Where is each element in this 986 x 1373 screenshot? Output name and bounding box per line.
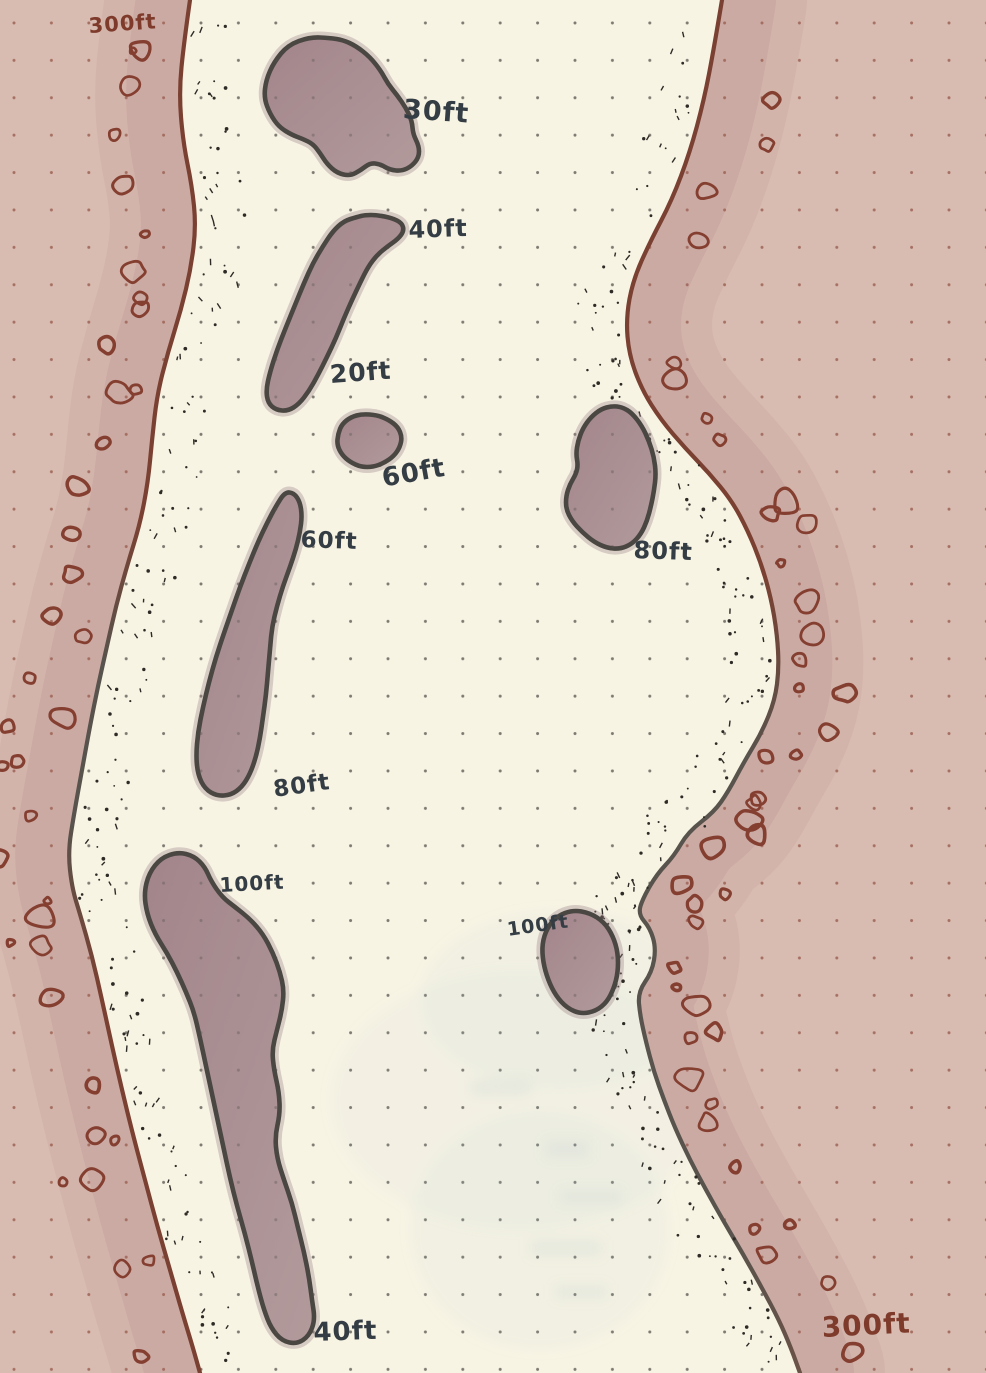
stipple-dot [688, 112, 690, 114]
stipple-dot [105, 808, 109, 812]
stipple-mark [619, 360, 620, 365]
stipple-dot [614, 358, 617, 361]
stipple-dot [647, 822, 650, 825]
stipple-dot [101, 857, 105, 861]
stipple-dot [88, 817, 92, 821]
stipple-dot [148, 1137, 151, 1140]
stipple-dot [619, 396, 621, 398]
stipple-dot [767, 1316, 770, 1319]
stipple-dot [641, 1137, 644, 1140]
stipple-dot [629, 1086, 631, 1088]
stipple-dot [216, 1336, 218, 1338]
stipple-dot [227, 1352, 230, 1355]
stipple-dot [656, 1111, 659, 1114]
stipple-mark [193, 439, 195, 444]
stipple-dot [599, 364, 601, 366]
stipple-dot [668, 438, 671, 441]
stipple-dot [95, 873, 98, 876]
stipple-dot [165, 1238, 168, 1241]
stipple-dot [620, 383, 623, 386]
stipple-dot [688, 1202, 691, 1205]
stipple-dot [721, 1268, 724, 1271]
stipple-dot [730, 661, 733, 664]
stipple-dot [697, 1235, 700, 1238]
stipple-mark [712, 497, 713, 502]
stipple-dot [213, 97, 216, 100]
stipple-dot [721, 730, 724, 733]
stipple-dot [705, 539, 708, 542]
stipple-dot [611, 396, 614, 399]
stipple-dot [639, 851, 642, 854]
stipple-dot [114, 697, 116, 699]
stipple-mark [143, 599, 145, 603]
stipple-dot [662, 1147, 665, 1150]
stipple-mark [729, 608, 731, 613]
stipple-dot [642, 137, 645, 140]
stipple-dot [663, 440, 665, 442]
stipple-dot [101, 899, 103, 901]
stipple-dot [724, 519, 727, 522]
stipple-dot [162, 514, 165, 517]
stipple-dot [706, 534, 709, 537]
stipple-dot [602, 305, 604, 307]
stipple-dot [214, 1332, 216, 1334]
stipple-dot [729, 1257, 732, 1260]
stipple-dot [183, 347, 187, 351]
stipple-mark [776, 1355, 778, 1360]
stipple-dot [761, 625, 763, 627]
stipple-dot [243, 213, 246, 216]
stipple-dot [768, 659, 772, 663]
stipple-dot [694, 1175, 697, 1178]
stipple-dot [203, 1310, 205, 1312]
stipple-dot [121, 798, 123, 800]
stipple-dot [114, 733, 118, 737]
stipple-dot [604, 1014, 606, 1016]
stipple-dot [725, 776, 728, 779]
stipple-dot [183, 410, 186, 413]
stipple-dot [628, 251, 630, 253]
stipple-dot [723, 545, 725, 547]
stipple-dot [214, 323, 217, 326]
stipple-dot [714, 1255, 716, 1257]
stipple-dot [216, 147, 219, 150]
stipple-dot [697, 1254, 701, 1258]
stipple-dot [631, 1071, 635, 1075]
stipple-dot [611, 359, 614, 362]
stipple-dot [158, 1133, 161, 1136]
stipple-dot [595, 312, 597, 314]
stipple-dot [728, 632, 732, 636]
stipple-dot [188, 1271, 190, 1273]
stipple-dot [605, 1054, 607, 1056]
stipple-dot [203, 410, 206, 413]
stipple-dot [641, 1127, 645, 1131]
stipple-dot [149, 529, 151, 531]
stipple-dot [746, 700, 749, 703]
stipple-dot [224, 130, 226, 132]
stipple-dot [201, 1323, 205, 1327]
stipple-dot [136, 1012, 140, 1016]
stipple-dot [686, 104, 689, 107]
stipple-dot [631, 879, 634, 882]
stipple-dot [223, 270, 227, 274]
stipple-dot [620, 892, 624, 896]
stipple-dot [125, 991, 129, 995]
stipple-dot [122, 1032, 125, 1035]
stipple-dot [214, 227, 216, 229]
stipple-dot [171, 507, 174, 510]
stipple-dot [203, 176, 206, 179]
stipple-dot [745, 1325, 749, 1329]
stipple-dot [84, 806, 87, 809]
stipple-dot [187, 507, 189, 509]
stipple-dot [592, 384, 595, 387]
stipple-mark [633, 887, 635, 892]
stipple-dot [678, 1174, 680, 1176]
stipple-dot [751, 695, 753, 697]
stipple-dot [703, 816, 705, 818]
stipple-dot [639, 925, 641, 927]
hand-drawn-depth-map: 300ft30ft40ft20ft60ft60ft80ft80ft100ft10… [0, 0, 986, 1373]
stipple-dot [728, 540, 731, 543]
stipple-dot [151, 603, 154, 606]
stipple-dot [746, 577, 749, 580]
stipple-dot [209, 146, 211, 148]
stipple-dot [136, 564, 139, 567]
stipple-dot [586, 369, 588, 371]
stipple-dot [195, 440, 198, 443]
stipple-dot [681, 62, 684, 65]
stipple-dot [131, 589, 134, 592]
stipple-dot [211, 1322, 215, 1326]
stipple-dot [113, 785, 115, 787]
stipple-dot [111, 958, 114, 961]
stipple-dot [735, 588, 737, 590]
stipple-dot [185, 526, 188, 529]
stipple-dot [603, 1030, 605, 1032]
stipple-dot [185, 1174, 187, 1176]
stipple-dot [142, 1034, 144, 1036]
stipple-dot [734, 652, 738, 656]
stipple-mark [199, 1271, 201, 1275]
stipple-dot [694, 766, 696, 768]
stipple-dot [135, 1042, 138, 1045]
stipple-dot [593, 304, 596, 307]
stipple-dot [602, 265, 605, 268]
stipple-dot [622, 1022, 625, 1025]
stipple-dot [635, 963, 637, 965]
stipple-dot [111, 982, 115, 986]
stipple-dot [616, 1092, 619, 1095]
stipple-dot [709, 1255, 711, 1257]
stipple-dot [632, 958, 635, 961]
stipple-dot [733, 1237, 736, 1240]
stipple-dot [743, 1281, 746, 1284]
stipple-dot [81, 893, 84, 896]
stipple-dot [217, 25, 219, 27]
stipple-dot [126, 926, 128, 928]
stipple-dot [732, 1326, 735, 1329]
stipple-dot [614, 389, 618, 393]
stipple-dot [688, 503, 690, 505]
stipple-dot [719, 538, 722, 541]
stipple-dot [224, 25, 227, 28]
stipple-dot [141, 999, 144, 1002]
stipple-dot [143, 629, 146, 632]
stipple-dot [750, 595, 754, 599]
stipple-dot [224, 1359, 227, 1362]
stipple-dot [108, 712, 112, 716]
stipple-dot [171, 407, 174, 410]
stipple-dot [225, 127, 229, 131]
stipple-dot [160, 490, 162, 492]
stipple-dot [723, 537, 726, 540]
stipple-dot [685, 498, 688, 501]
stipple-dot [646, 815, 649, 818]
stipple-dot [677, 1234, 680, 1237]
stipple-dot [146, 569, 150, 573]
stipple-dot [110, 966, 113, 969]
stipple-dot [757, 689, 760, 692]
stipple-dot [577, 303, 579, 305]
stipple-dot [224, 265, 226, 267]
stipple-dot [115, 817, 118, 820]
stipple-dot [766, 1308, 770, 1312]
stipple-dot [668, 441, 672, 445]
stipple-dot [664, 800, 668, 804]
stipple-dot [129, 700, 131, 702]
stipple-dot [728, 619, 732, 623]
stipple-dot [126, 781, 129, 784]
stipple-dot [658, 821, 660, 823]
stipple-dot [148, 610, 152, 614]
stipple-dot [185, 466, 187, 468]
stipple-dot [628, 929, 631, 932]
stipple-dot [715, 742, 718, 745]
stipple-dot [665, 147, 667, 149]
stipple-dot [723, 582, 726, 585]
stipple-dot [742, 1332, 745, 1335]
stipple-dot [698, 464, 700, 466]
stipple-dot [713, 497, 716, 500]
stipple-dot [617, 333, 620, 336]
stipple-dot [687, 788, 689, 790]
stipple-dot [741, 702, 744, 705]
stipple-dot [656, 1127, 659, 1130]
stipple-dot [96, 846, 98, 848]
stipple-dot [770, 1336, 772, 1338]
stipple-dot [114, 759, 116, 761]
stipple-dot [697, 1182, 700, 1185]
stipple-dot [765, 675, 768, 678]
stipple-dot [646, 887, 648, 889]
stipple-mark [629, 945, 631, 951]
stipple-dot [646, 185, 648, 187]
stipple-dot [674, 451, 677, 454]
stipple-dot [213, 80, 215, 82]
stipple-dot [141, 1127, 144, 1130]
stipple-dot [133, 950, 135, 952]
stipple-dot [227, 1306, 229, 1308]
stipple-dot [621, 1087, 623, 1089]
stipple-dot [664, 825, 666, 827]
stipple-dot [654, 1145, 657, 1148]
stipple-dot [747, 1288, 751, 1292]
stipple-dot [200, 342, 202, 344]
stipple-dot [203, 273, 205, 275]
stipple-dot [191, 396, 193, 398]
stipple-dot [196, 476, 198, 478]
stipple-dot [703, 825, 706, 828]
stipple-dot [115, 688, 118, 691]
stipple-dot [616, 998, 619, 1001]
stipple-dot [216, 172, 218, 174]
stipple-dot [596, 381, 600, 385]
stipple-dot [680, 795, 683, 798]
stipple-dot [742, 594, 744, 596]
stipple-dot [199, 1241, 201, 1243]
stipple-dot [139, 1091, 142, 1094]
stipple-dot [734, 595, 736, 597]
stipple-dot [761, 690, 764, 693]
stipple-dot [145, 679, 147, 681]
stipple-dot [173, 576, 177, 580]
stipple-dot [592, 1028, 595, 1031]
stipple-dot [629, 991, 631, 993]
stipple-dot [633, 1081, 635, 1083]
stipple-dot [201, 1315, 204, 1318]
stipple-dot [239, 180, 242, 183]
stipple-dot [96, 828, 99, 831]
stipple-dot [615, 876, 618, 879]
stipple-dot [610, 290, 614, 294]
stipple-dot [702, 507, 706, 511]
stipple-dot [107, 771, 109, 773]
stipple-mark [210, 259, 212, 265]
stipple-dot [687, 484, 689, 486]
stipple-dot [617, 302, 619, 304]
stipple-dot [184, 1212, 187, 1215]
stipple-dot [106, 874, 109, 877]
stipple-dot [749, 1307, 752, 1310]
stipple-dot [650, 214, 653, 217]
stipple-dot [95, 780, 98, 783]
stipple-dot [696, 755, 699, 758]
stipple-dot [713, 790, 716, 793]
stipple-dot [648, 1167, 652, 1171]
stipple-dot [741, 741, 743, 743]
stipple-dot [191, 312, 193, 314]
stipple-dot [647, 832, 650, 835]
stipple-mark [212, 308, 214, 312]
stipple-dot [78, 897, 81, 900]
stipple-dot [717, 568, 720, 571]
stipple-dot [98, 879, 100, 881]
stipple-dot [680, 1161, 682, 1163]
stipple-dot [679, 95, 681, 97]
stipple-dot [142, 668, 145, 671]
stipple-dot [734, 631, 736, 633]
stipple-dot [162, 569, 165, 572]
stipple-dot [89, 910, 91, 912]
stipple-dot [664, 829, 666, 831]
stipple-dot [170, 1150, 172, 1152]
stipple-dot [595, 895, 597, 897]
stipple-dot [112, 1008, 115, 1011]
stipple-dot [175, 1165, 177, 1167]
stipple-dot [722, 586, 725, 589]
stipple-dot [636, 188, 638, 190]
stipple-dot [768, 1361, 770, 1363]
stipple-dot [224, 86, 228, 90]
map-drawing [0, 0, 986, 1373]
stipple-dot [112, 725, 114, 727]
